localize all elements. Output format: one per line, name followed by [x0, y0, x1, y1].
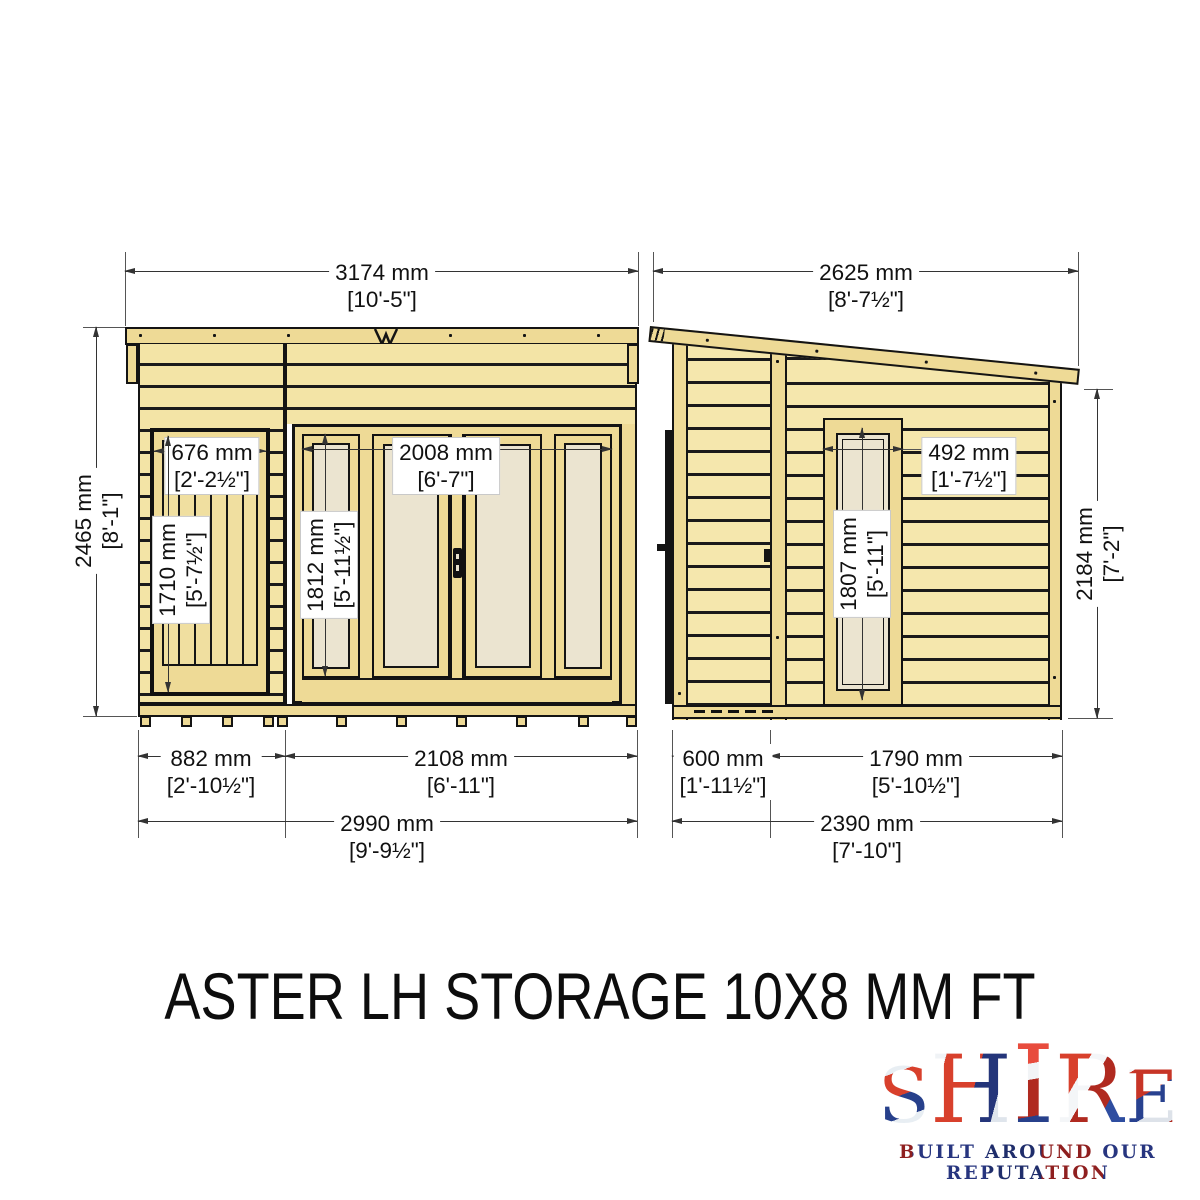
dim-mm: 600 mm: [680, 745, 767, 772]
extension-line: [653, 252, 654, 322]
nail-dot: [449, 334, 452, 337]
dim-mm: 1790 mm: [869, 745, 963, 772]
dim-mm: 2990 mm: [340, 810, 434, 837]
dim-door-width: 676 mm [2'-2½"]: [164, 437, 259, 495]
side-corner-trim-left: [672, 336, 688, 720]
roof-overhang-cap-right: [627, 344, 639, 384]
nail-dot: [1034, 371, 1037, 374]
floor-dash: [711, 710, 722, 713]
skid-foot: [396, 716, 407, 727]
dim-ft: [9'-9½"]: [340, 837, 434, 864]
nail-dot: [678, 692, 681, 695]
shire-logo: SHIRE BUILT AROUND OUR REPUTATION: [858, 1032, 1198, 1184]
dim-mm: 2108 mm: [414, 745, 508, 772]
dim-glazing-width: 2008 mm [6'-7"]: [392, 437, 500, 495]
nail-dot: [287, 334, 290, 337]
glazing-bottom-rail: [302, 678, 612, 702]
dim-ft: [5'-11"]: [862, 517, 889, 611]
dim-mm: 1807 mm: [835, 517, 862, 611]
dim-ft: [5'-10½"]: [869, 772, 963, 799]
front-floor: [138, 704, 637, 717]
dim-side-window-height: 1807 mm [5'-11"]: [833, 510, 891, 618]
nail-dot: [815, 350, 818, 353]
dim-total-width: 2990 mm [9'-9½"]: [334, 809, 440, 865]
extension-line: [1068, 718, 1113, 719]
floor-dash: [762, 710, 773, 713]
page-title: ASTER LH STORAGE 10X8 MM FT: [108, 958, 1092, 1034]
side-storage-cladding: [688, 338, 770, 720]
dim-front-height: 2465 mm [8'-1"]: [69, 468, 125, 574]
extension-line: [83, 716, 137, 717]
roof-end-grain-hatch: [651, 328, 665, 341]
glass-pane: [564, 443, 602, 669]
nail-dot: [1053, 676, 1056, 679]
skid-foot: [263, 716, 274, 727]
nail-dot: [776, 360, 779, 363]
dim-mm: 2625 mm: [819, 259, 913, 286]
nail-dot: [139, 334, 142, 337]
dim-mm: 2184 mm: [1071, 507, 1098, 601]
floor-dash: [745, 710, 756, 713]
dim-ft: [1'-7½"]: [928, 466, 1009, 493]
nail-dot: [523, 334, 526, 337]
side-corner-trim-right: [1048, 366, 1062, 720]
nail-dot: [706, 339, 709, 342]
dim-ft: [2'-2½"]: [171, 466, 252, 493]
dim-main-width: 2108 mm [6'-11"]: [408, 744, 514, 800]
extension-line: [638, 252, 639, 326]
dim-main-depth: 1790 mm [5'-10½"]: [863, 744, 969, 800]
dim-glazing-height: 1812 mm [5'-11½"]: [300, 511, 358, 619]
dim-front-roof-width: 3174 mm [10'-5"]: [329, 258, 435, 314]
dim-side-window-width: 492 mm [1'-7½"]: [921, 437, 1016, 495]
nail-dot: [776, 636, 779, 639]
skid-foot: [336, 716, 347, 727]
dim-ft: [10'-5"]: [335, 286, 429, 313]
skid-foot: [181, 716, 192, 727]
dim-total-depth: 2390 mm [7'-10"]: [814, 809, 920, 865]
dim-storage-width: 882 mm [2'-10½"]: [161, 744, 262, 800]
nail-dot: [597, 334, 600, 337]
dim-ft: [8'-7½"]: [819, 286, 913, 313]
dim-ft: [7'-2"]: [1098, 507, 1125, 601]
skid-foot: [222, 716, 233, 727]
dim-mm: 676 mm: [171, 439, 252, 466]
storage-door-bottom-rail: [162, 664, 258, 684]
roof-overhang-cap-left: [126, 344, 138, 384]
dim-ft: [6'-7"]: [399, 466, 493, 493]
dim-mm: 1812 mm: [302, 518, 329, 612]
nail-dot: [213, 334, 216, 337]
drawing-sheet: 3174 mm [10'-5"] 2465 mm [8'-1"] 676 mm …: [0, 0, 1200, 1200]
front-main-cladding-band: [287, 344, 637, 424]
skid-foot: [456, 716, 467, 727]
dim-ft: [7'-10"]: [820, 837, 914, 864]
skid-foot: [277, 716, 288, 727]
dim-mm: 2008 mm: [399, 439, 493, 466]
extension-line: [83, 327, 125, 328]
dim-mm: 882 mm: [167, 745, 256, 772]
nail-dot: [925, 360, 928, 363]
dim-ft: [1'-11½"]: [680, 772, 767, 799]
dim-ft: [2'-10½"]: [167, 772, 256, 799]
dim-ft: [5'-11½"]: [329, 518, 356, 612]
dim-side-roof-depth: 2625 mm [8'-7½"]: [813, 258, 919, 314]
dim-side-height: 2184 mm [7'-2"]: [1070, 501, 1126, 607]
dim-mm: 492 mm: [928, 439, 1009, 466]
keyhole: [456, 554, 459, 559]
extension-line: [125, 252, 126, 326]
brand-wordmark: SHIRE: [858, 1032, 1198, 1156]
skid-foot: [516, 716, 527, 727]
dim-door-height: 1710 mm [5'-7½"]: [152, 516, 210, 624]
brand-tagline: BUILT AROUND OUR REPUTATION: [858, 1142, 1198, 1184]
door-handle: [453, 548, 462, 578]
dim-mm: 1710 mm: [154, 523, 181, 617]
side-door-latch: [764, 549, 772, 562]
dim-line-side-window-width: [823, 449, 903, 450]
skid-foot: [626, 716, 637, 727]
side-door-knob: [657, 544, 666, 551]
floor-dash: [728, 710, 739, 713]
fixed-pane-right: [554, 434, 612, 678]
dim-storage-depth: 600 mm [1'-11½"]: [674, 744, 773, 800]
keyhole: [456, 565, 459, 571]
front-corner-strip-right: [622, 424, 637, 704]
dim-mm: 3174 mm: [335, 259, 429, 286]
dim-ft: [6'-11"]: [414, 772, 508, 799]
nail-dot: [1053, 400, 1056, 403]
skid-foot: [140, 716, 151, 727]
side-divider-trim: [770, 344, 787, 720]
dim-ft: [8'-1"]: [97, 474, 124, 568]
skid-foot: [578, 716, 589, 727]
dim-mm: 2390 mm: [820, 810, 914, 837]
side-door-edge: [665, 430, 673, 704]
dim-mm: 2465 mm: [70, 474, 97, 568]
floor-dash: [694, 710, 705, 713]
dim-ft: [5'-7½"]: [181, 523, 208, 617]
